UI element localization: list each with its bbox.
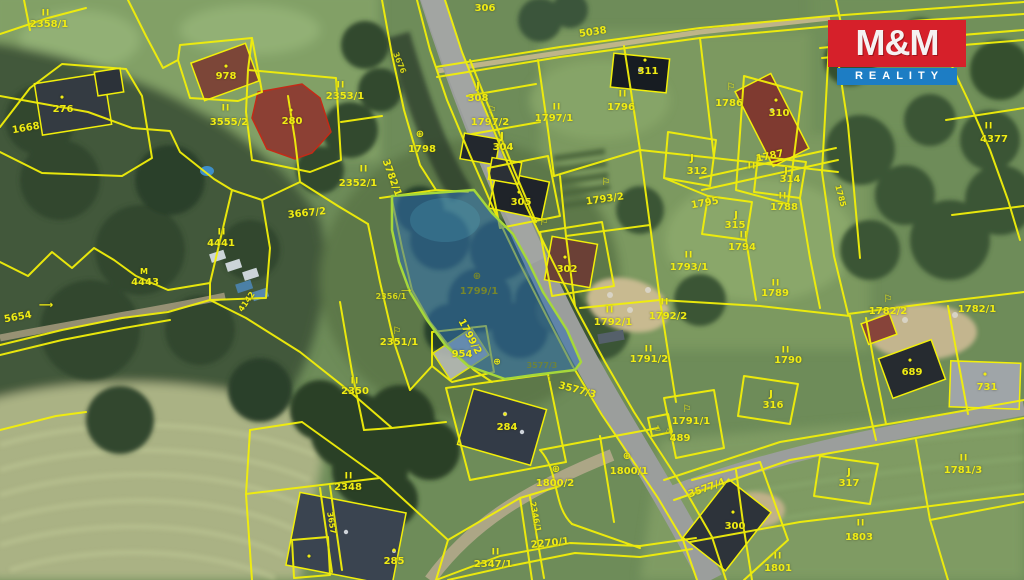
- map-viewport[interactable]: II2358/1•2761668•978II3555/2•280II2353/1…: [0, 0, 1024, 580]
- logo-reality-text: REALITY: [837, 68, 957, 85]
- logo-title: M&M: [856, 22, 939, 63]
- logo-subtitle: REALITY: [855, 70, 944, 82]
- logo-mm-text: M&M: [828, 20, 966, 67]
- mm-reality-logo: M&M REALITY: [828, 20, 966, 85]
- highlight-sheen: [410, 198, 480, 242]
- map-canvas: [0, 0, 1024, 580]
